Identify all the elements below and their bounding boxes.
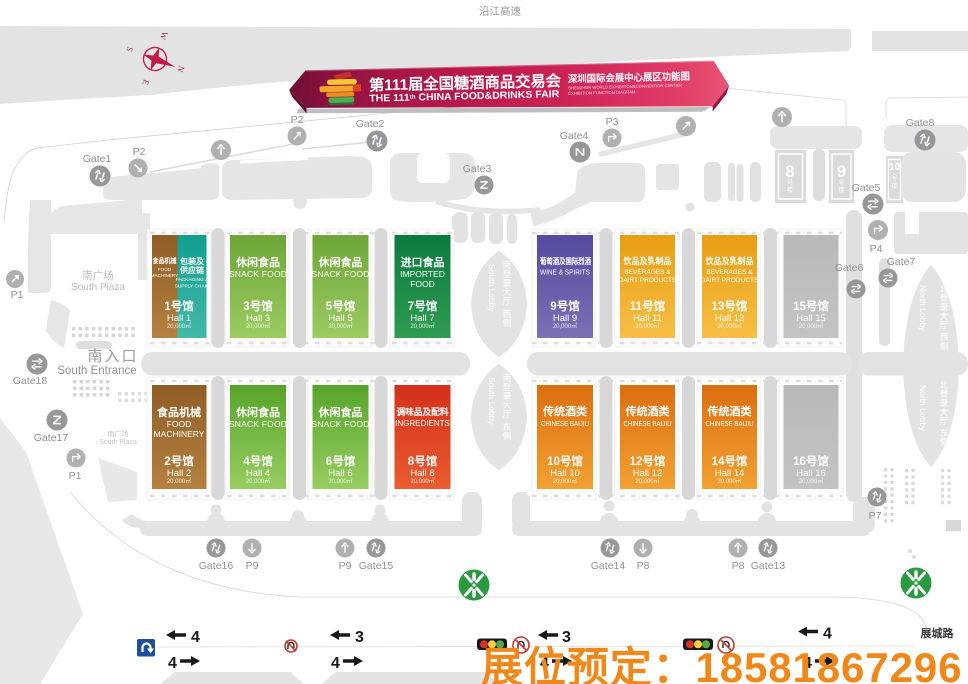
svg-text:南广场: 南广场 bbox=[108, 429, 129, 438]
svg-text:WINE & SPIRITS: WINE & SPIRITS bbox=[540, 268, 590, 277]
svg-text:20,000㎡: 20,000㎡ bbox=[167, 322, 191, 330]
svg-text:12号馆: 12号馆 bbox=[630, 454, 666, 468]
svg-text:SUPPLY CHAIN: SUPPLY CHAIN bbox=[175, 284, 210, 290]
svg-text:20,000㎡: 20,000㎡ bbox=[553, 322, 577, 330]
svg-text:9号馆: 9号馆 bbox=[550, 299, 580, 313]
svg-text:20,000㎡: 20,000㎡ bbox=[799, 477, 823, 485]
svg-text:4: 4 bbox=[168, 655, 177, 672]
svg-text:20,000㎡: 20,000㎡ bbox=[553, 477, 577, 485]
svg-text:休闲食品: 休闲食品 bbox=[318, 255, 363, 269]
svg-text:Gate14: Gate14 bbox=[591, 560, 626, 572]
svg-text:号: 号 bbox=[891, 175, 897, 182]
svg-text:PACKAGING &: PACKAGING & bbox=[176, 277, 209, 283]
svg-text:1号馆: 1号馆 bbox=[164, 299, 194, 313]
svg-text:饮品及乳制品: 饮品及乳制品 bbox=[623, 256, 672, 266]
svg-text:Gate18: Gate18 bbox=[13, 375, 48, 387]
svg-text:MACHINERY: MACHINERY bbox=[154, 429, 205, 439]
svg-text:9: 9 bbox=[837, 162, 846, 181]
svg-text:CHINESE BAIJIU: CHINESE BAIJIU bbox=[541, 421, 589, 428]
svg-text:Gate15: Gate15 bbox=[359, 560, 394, 572]
svg-text:葡萄酒及国际烈酒: 葡萄酒及国际烈酒 bbox=[539, 256, 591, 266]
svg-text:P9: P9 bbox=[246, 560, 259, 572]
svg-text:Gate2: Gate2 bbox=[356, 118, 385, 130]
svg-text:7号馆: 7号馆 bbox=[408, 299, 438, 313]
svg-text:楼: 楼 bbox=[891, 182, 897, 190]
svg-text:Gate5: Gate5 bbox=[852, 182, 881, 194]
svg-text:4号馆: 4号馆 bbox=[243, 454, 273, 468]
svg-text:10: 10 bbox=[889, 162, 901, 173]
svg-text:3: 3 bbox=[355, 629, 364, 646]
svg-text:3号馆: 3号馆 bbox=[243, 299, 273, 313]
svg-text:休闲食品: 休闲食品 bbox=[235, 255, 280, 269]
svg-text:包装及: 包装及 bbox=[179, 256, 205, 266]
svg-text:Gate1: Gate1 bbox=[83, 153, 112, 165]
svg-text:DAIRT PRODUCTS: DAIRT PRODUCTS bbox=[701, 277, 759, 284]
svg-text:14号馆: 14号馆 bbox=[712, 454, 748, 468]
svg-text:BEVERAGES &: BEVERAGES & bbox=[706, 269, 753, 276]
svg-text:Hall 12: Hall 12 bbox=[633, 468, 663, 479]
svg-text:South Plaza: South Plaza bbox=[99, 439, 137, 446]
svg-text:CHINESE BAIJIU: CHINESE BAIJIU bbox=[624, 421, 672, 428]
svg-text:南入口: 南入口 bbox=[87, 348, 138, 365]
svg-text:供应链: 供应链 bbox=[179, 265, 205, 275]
svg-text:5号馆: 5号馆 bbox=[326, 299, 356, 313]
svg-text:Gate17: Gate17 bbox=[34, 432, 69, 444]
svg-text:南广场: 南广场 bbox=[82, 269, 114, 282]
svg-text:P9: P9 bbox=[339, 560, 352, 572]
svg-text:SNACK FOOD: SNACK FOOD bbox=[229, 269, 287, 279]
svg-text:FOOD: FOOD bbox=[167, 419, 192, 429]
svg-text:Gate3: Gate3 bbox=[463, 163, 492, 175]
svg-text:8: 8 bbox=[785, 162, 794, 181]
svg-text:P2: P2 bbox=[291, 114, 304, 126]
svg-text:6号馆: 6号馆 bbox=[326, 454, 356, 468]
svg-text:休闲食品: 休闲食品 bbox=[235, 405, 280, 419]
svg-text:休闲食品: 休闲食品 bbox=[318, 405, 363, 419]
svg-text:20,000㎡: 20,000㎡ bbox=[635, 322, 659, 330]
svg-text:P1: P1 bbox=[69, 470, 82, 482]
svg-text:20,000㎡: 20,000㎡ bbox=[246, 477, 270, 485]
svg-text:南登录大厅东侧: 南登录大厅东侧 bbox=[503, 373, 512, 441]
svg-text:DAIRT PRODUCTS: DAIRT PRODUCTS bbox=[619, 277, 677, 284]
svg-text:20,000㎡: 20,000㎡ bbox=[328, 477, 352, 485]
svg-text:Gate4: Gate4 bbox=[560, 130, 589, 142]
svg-text:South Lobby: South Lobby bbox=[487, 377, 497, 425]
svg-text:South Plaza: South Plaza bbox=[71, 282, 125, 293]
svg-text:10号馆: 10号馆 bbox=[547, 454, 583, 468]
svg-text:南登录大厅西侧: 南登录大厅西侧 bbox=[503, 260, 512, 328]
svg-text:P2: P2 bbox=[133, 146, 146, 158]
svg-text:进口食品: 进口食品 bbox=[401, 255, 445, 269]
svg-text:20,000㎡: 20,000㎡ bbox=[717, 322, 741, 330]
svg-text:South Lobby: South Lobby bbox=[487, 264, 497, 312]
svg-text:Gate16: Gate16 bbox=[199, 560, 234, 572]
svg-text:食品机械: 食品机械 bbox=[157, 405, 201, 419]
svg-text:4: 4 bbox=[823, 626, 832, 643]
svg-text:4: 4 bbox=[191, 629, 200, 646]
svg-text:Gate13: Gate13 bbox=[751, 560, 786, 572]
svg-text:Hall 16: Hall 16 bbox=[796, 468, 826, 479]
svg-text:Hall 11: Hall 11 bbox=[633, 313, 662, 324]
svg-text:P8: P8 bbox=[732, 560, 745, 572]
svg-text:调味品及配料: 调味品及配料 bbox=[397, 406, 449, 417]
svg-text:北登录大厅西侧: 北登录大厅西侧 bbox=[940, 284, 949, 351]
svg-text:IMPORTED: IMPORTED bbox=[400, 269, 445, 279]
svg-text:食品机械: 食品机械 bbox=[152, 256, 177, 265]
svg-text:FOOD: FOOD bbox=[158, 267, 172, 272]
svg-text:Hall 1: Hall 1 bbox=[167, 313, 191, 324]
svg-text:Gate6: Gate6 bbox=[835, 262, 864, 274]
svg-text:Hall 3: Hall 3 bbox=[246, 313, 270, 324]
svg-text:MACHINERY: MACHINERY bbox=[151, 273, 178, 278]
svg-text:11号馆: 11号馆 bbox=[630, 299, 666, 313]
svg-text:传统酒类: 传统酒类 bbox=[707, 404, 753, 418]
svg-text:SNACK FOOD: SNACK FOOD bbox=[311, 419, 369, 429]
svg-text:BEVERAGES &: BEVERAGES & bbox=[624, 269, 671, 276]
svg-text:P1: P1 bbox=[11, 289, 24, 301]
svg-text:Gate7: Gate7 bbox=[887, 256, 916, 268]
svg-text:SNACK FOOD: SNACK FOOD bbox=[311, 269, 369, 279]
svg-text:展位预定：18581867296: 展位预定：18581867296 bbox=[481, 644, 962, 684]
svg-text:Hall 9: Hall 9 bbox=[553, 313, 577, 324]
svg-text:20,000㎡: 20,000㎡ bbox=[799, 322, 823, 330]
svg-text:8号馆: 8号馆 bbox=[408, 454, 438, 468]
svg-text:沿江高速: 沿江高速 bbox=[479, 5, 521, 18]
svg-text:20,000㎡: 20,000㎡ bbox=[410, 322, 434, 330]
svg-text:传统酒类: 传统酒类 bbox=[625, 404, 671, 418]
svg-text:4: 4 bbox=[331, 655, 340, 672]
svg-text:Gate8: Gate8 bbox=[906, 117, 935, 129]
svg-text:CHINESE BAIJIU: CHINESE BAIJIU bbox=[706, 421, 754, 428]
svg-text:North Lobby: North Lobby bbox=[918, 285, 928, 332]
svg-text:Hall 4: Hall 4 bbox=[246, 468, 270, 479]
svg-text:2号馆: 2号馆 bbox=[164, 454, 194, 468]
svg-text:Hall 7: Hall 7 bbox=[410, 313, 434, 324]
svg-text:Hall 5: Hall 5 bbox=[328, 313, 352, 324]
svg-text:饮品及乳制品: 饮品及乳制品 bbox=[705, 256, 754, 266]
svg-text:北登录大厅东侧: 北登录大厅东侧 bbox=[940, 380, 949, 447]
svg-text:20,000㎡: 20,000㎡ bbox=[410, 477, 434, 485]
svg-text:North Lobby: North Lobby bbox=[918, 385, 928, 432]
svg-text:South Entrance: South Entrance bbox=[57, 365, 136, 377]
svg-text:20,000㎡: 20,000㎡ bbox=[328, 322, 352, 330]
svg-text:13号馆: 13号馆 bbox=[712, 299, 748, 313]
svg-text:16号馆: 16号馆 bbox=[793, 454, 829, 468]
svg-text:Hall 6: Hall 6 bbox=[328, 468, 352, 479]
svg-text:20,000㎡: 20,000㎡ bbox=[717, 477, 741, 485]
svg-text:P8: P8 bbox=[637, 560, 650, 572]
svg-text:15号馆: 15号馆 bbox=[793, 299, 829, 313]
svg-text:P3: P3 bbox=[606, 116, 619, 128]
svg-text:号: 号 bbox=[838, 180, 844, 187]
svg-text:20,000㎡: 20,000㎡ bbox=[246, 322, 270, 330]
svg-text:FOOD: FOOD bbox=[410, 279, 435, 289]
svg-text:Hall 8: Hall 8 bbox=[410, 468, 434, 479]
svg-text:Hall 10: Hall 10 bbox=[550, 468, 580, 479]
svg-text:Hall 14: Hall 14 bbox=[715, 468, 745, 479]
svg-text:20,000㎡: 20,000㎡ bbox=[635, 477, 659, 485]
svg-text:Hall 15: Hall 15 bbox=[796, 313, 826, 324]
svg-text:楼: 楼 bbox=[787, 186, 793, 194]
svg-text:Hall 13: Hall 13 bbox=[715, 313, 745, 324]
svg-text:SNACK FOOD: SNACK FOOD bbox=[229, 419, 287, 429]
svg-text:展城路: 展城路 bbox=[920, 626, 955, 640]
svg-text:P7: P7 bbox=[869, 510, 882, 522]
svg-text:传统酒类: 传统酒类 bbox=[542, 404, 588, 418]
svg-text:Hall 2: Hall 2 bbox=[167, 468, 191, 479]
svg-text:楼: 楼 bbox=[838, 186, 844, 194]
svg-text:号: 号 bbox=[787, 180, 793, 187]
svg-text:P4: P4 bbox=[870, 243, 883, 255]
svg-text:20,000㎡: 20,000㎡ bbox=[167, 477, 191, 485]
svg-text:INGREDIENTS: INGREDIENTS bbox=[395, 419, 450, 428]
